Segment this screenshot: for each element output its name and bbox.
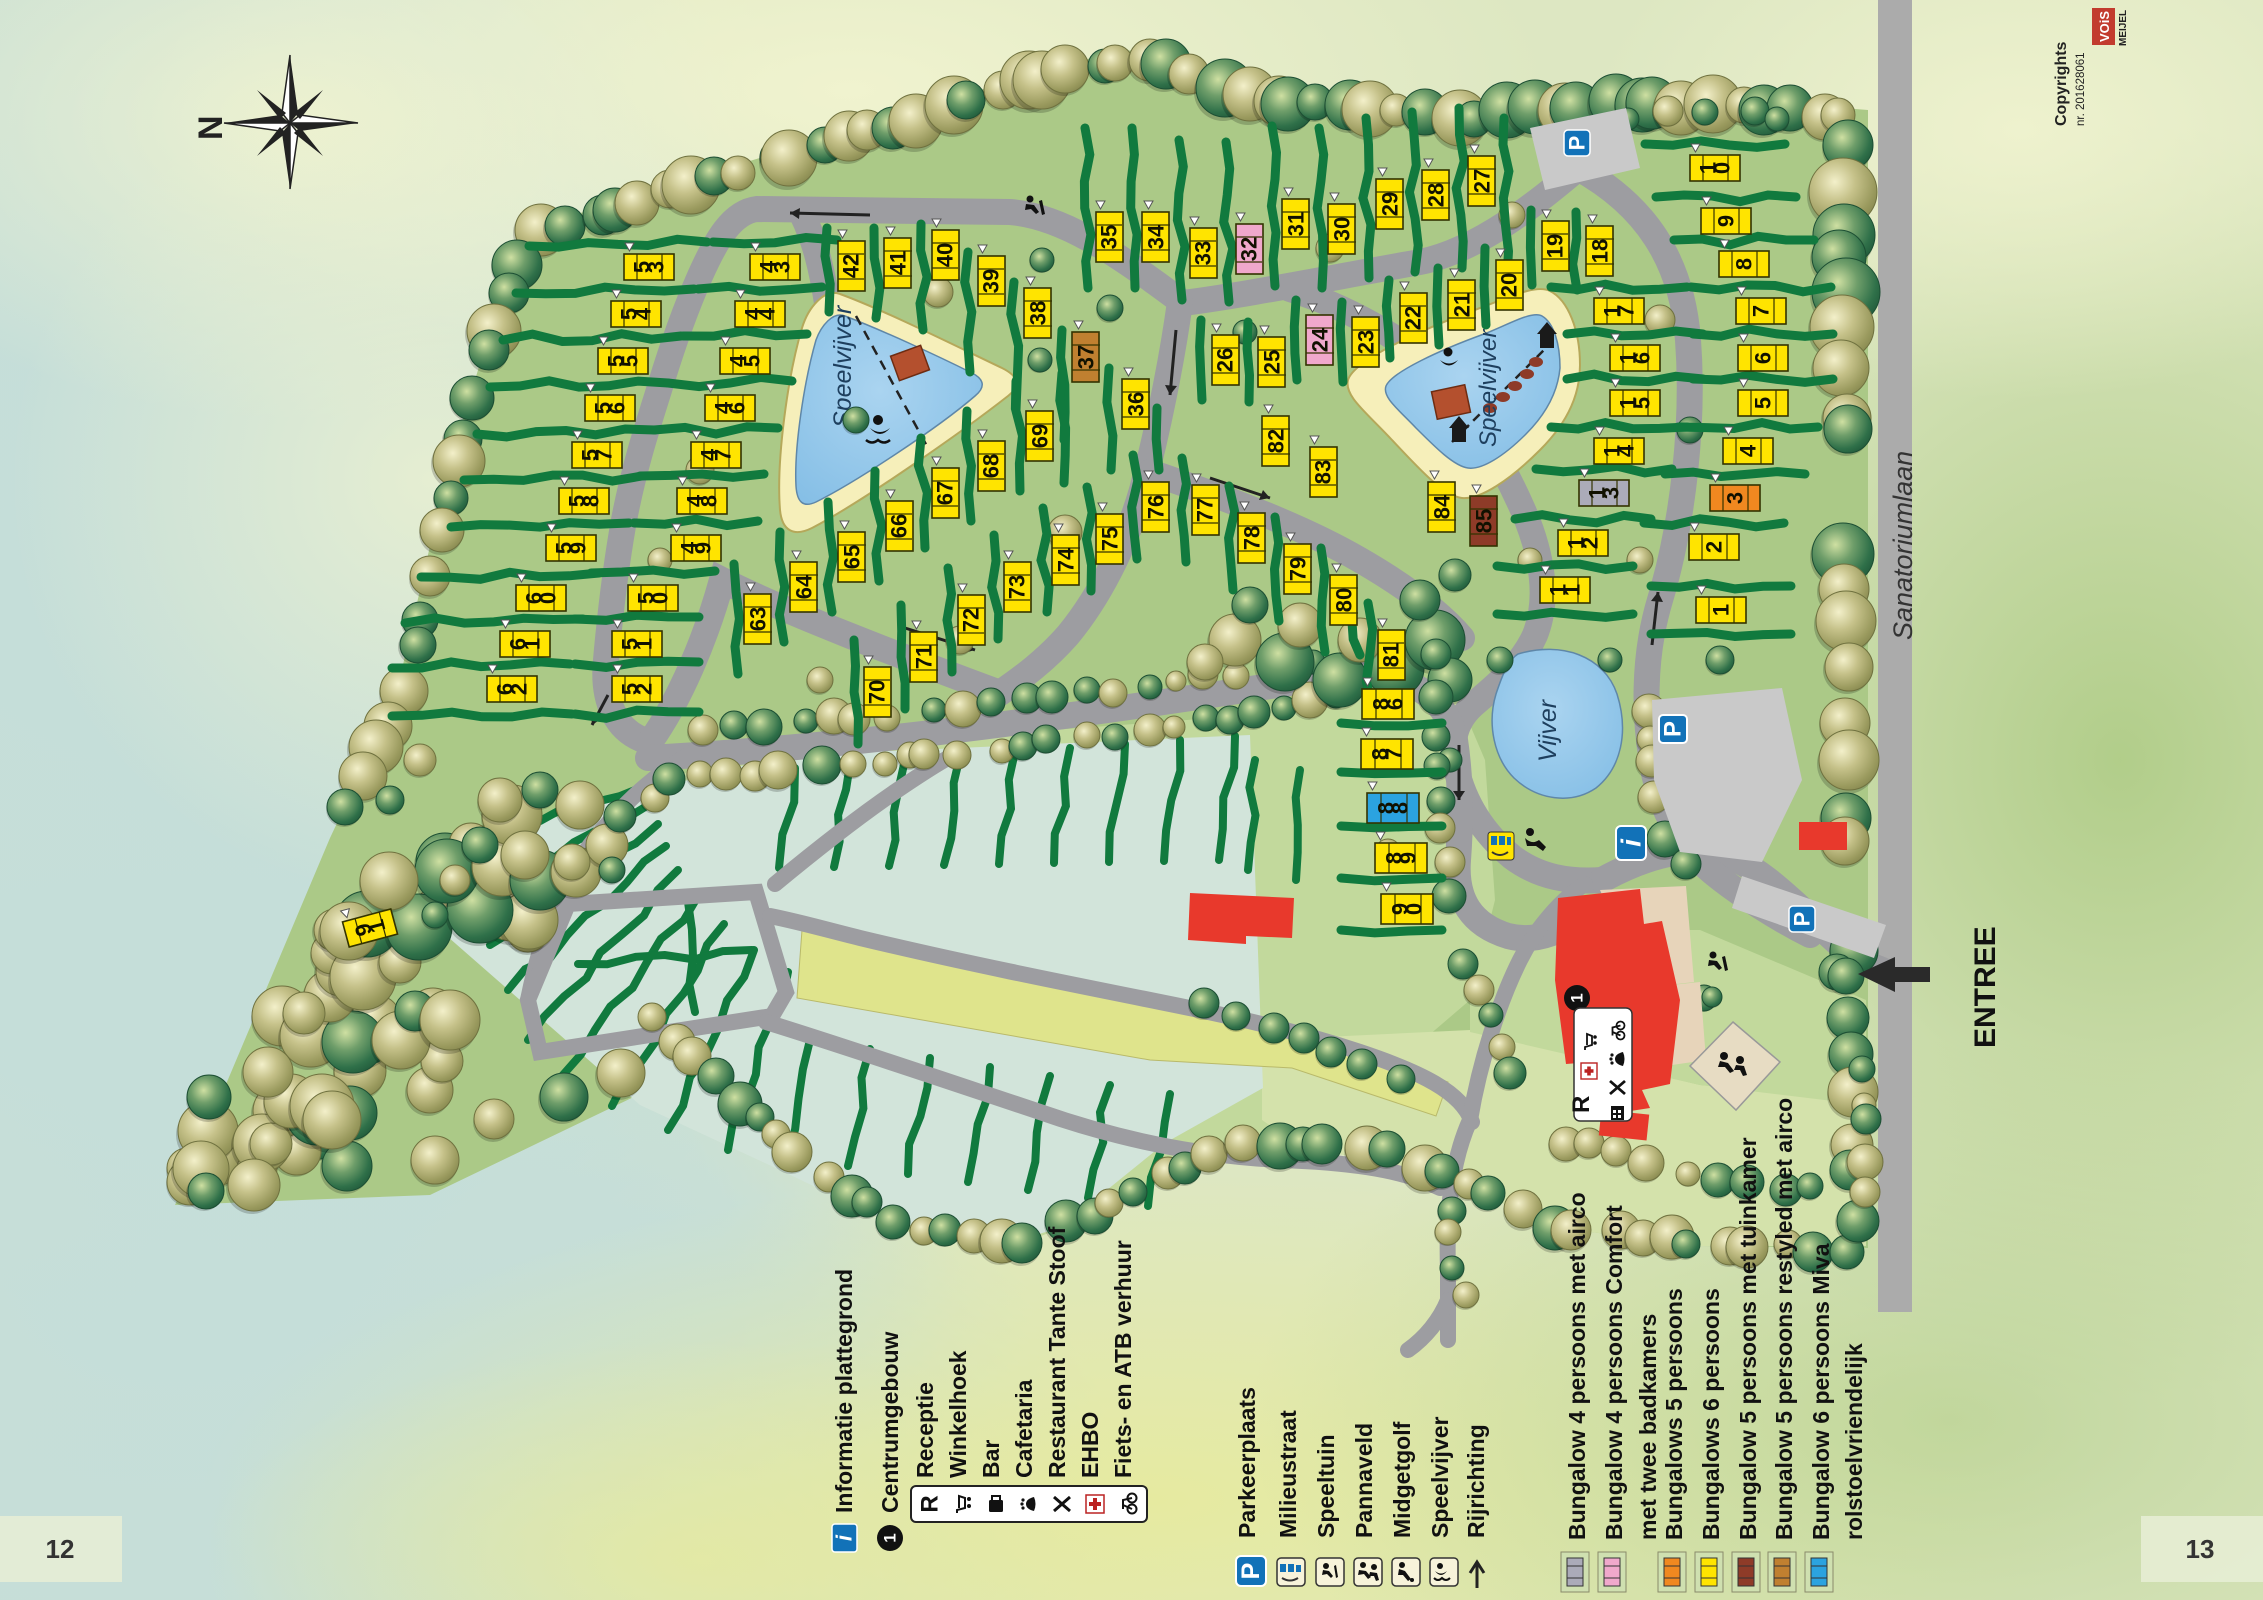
svg-text:1: 1 (1560, 584, 1585, 596)
svg-text:1: 1 (1709, 604, 1734, 616)
svg-text:Centrumgebouw: Centrumgebouw (877, 1331, 903, 1513)
svg-text:Bungalows 5 persoons: Bungalows 5 persoons (1661, 1288, 1687, 1540)
svg-text:Bungalow 5 persoons met tuinka: Bungalow 5 persoons met tuinkamer (1735, 1137, 1761, 1540)
svg-text:6: 6 (1383, 698, 1408, 710)
svg-text:39: 39 (979, 269, 1004, 293)
svg-text:N: N (192, 115, 230, 140)
svg-text:77: 77 (1193, 498, 1218, 522)
svg-text:6: 6 (725, 402, 750, 414)
svg-text:P: P (1790, 912, 1815, 927)
svg-text:Rijrichting: Rijrichting (1463, 1424, 1489, 1538)
svg-text:Cafetaria: Cafetaria (1011, 1379, 1037, 1478)
svg-text:23: 23 (1354, 330, 1379, 354)
svg-text:64: 64 (792, 574, 817, 599)
svg-text:Informatie plattegrond: Informatie plattegrond (831, 1269, 857, 1513)
svg-text:1: 1 (632, 638, 657, 650)
svg-text:Restaurant Tante Stoof: Restaurant Tante Stoof (1044, 1226, 1070, 1478)
svg-text:27: 27 (1470, 169, 1495, 193)
svg-text:3: 3 (1723, 492, 1748, 504)
svg-text:34: 34 (1144, 224, 1169, 249)
svg-text:7: 7 (1614, 305, 1639, 317)
svg-text:0: 0 (1402, 903, 1427, 915)
svg-text:9: 9 (691, 542, 716, 554)
svg-text:21: 21 (1450, 293, 1475, 317)
svg-text:met twee badkamers: met twee badkamers (1635, 1314, 1661, 1540)
svg-text:1: 1 (881, 1533, 900, 1542)
svg-text:5: 5 (1751, 397, 1776, 409)
svg-text:71: 71 (912, 645, 937, 669)
svg-text:13: 13 (2186, 1534, 2215, 1564)
svg-text:5: 5 (618, 355, 643, 367)
svg-text:69: 69 (1028, 424, 1053, 448)
svg-text:ENTREE: ENTREE (1969, 926, 2002, 1048)
svg-text:40: 40 (933, 243, 958, 267)
svg-text:33: 33 (1191, 241, 1216, 265)
svg-text:4: 4 (1614, 444, 1639, 457)
svg-text:80: 80 (1332, 588, 1357, 612)
svg-text:22: 22 (1401, 306, 1426, 330)
svg-text:Bungalows 6 persoons: Bungalows 6 persoons (1698, 1288, 1724, 1540)
svg-text:6: 6 (605, 402, 630, 414)
svg-text:0: 0 (536, 592, 561, 604)
svg-text:Speelvijver: Speelvijver (1475, 329, 1502, 447)
svg-text:7: 7 (711, 449, 736, 461)
svg-text:35: 35 (1097, 225, 1122, 249)
svg-text:2: 2 (1578, 537, 1603, 549)
svg-text:6: 6 (1630, 352, 1655, 364)
svg-text:rolstoelvriendelijk: rolstoelvriendelijk (1841, 1343, 1867, 1540)
svg-text:9: 9 (1714, 215, 1739, 227)
svg-text:36: 36 (1124, 392, 1149, 416)
svg-text:37: 37 (1074, 345, 1099, 369)
svg-text:7: 7 (1382, 748, 1407, 760)
svg-text:29: 29 (1378, 192, 1403, 216)
svg-text:Bungalow 6 persoons Miva: Bungalow 6 persoons Miva (1808, 1243, 1834, 1540)
svg-text:41: 41 (886, 251, 911, 275)
svg-text:i: i (832, 1534, 857, 1541)
svg-text:6: 6 (1751, 352, 1776, 364)
svg-text:8: 8 (579, 495, 604, 507)
svg-text:Parkeerplaats: Parkeerplaats (1234, 1387, 1260, 1538)
svg-text:5: 5 (740, 355, 765, 367)
svg-text:4: 4 (631, 307, 656, 320)
svg-text:42: 42 (839, 254, 864, 278)
svg-text:83: 83 (1311, 460, 1336, 484)
svg-text:24: 24 (1308, 327, 1333, 352)
svg-text:8: 8 (1388, 802, 1413, 814)
svg-text:20: 20 (1497, 273, 1522, 297)
svg-text:EHBO: EHBO (1077, 1412, 1103, 1478)
svg-text:P: P (1237, 1563, 1265, 1580)
svg-text:4: 4 (1736, 444, 1761, 457)
svg-text:P: P (1565, 136, 1590, 151)
svg-text:Copyrights: Copyrights (2053, 41, 2070, 126)
svg-text:Bungalow 4 persoons met airco: Bungalow 4 persoons met airco (1564, 1192, 1590, 1540)
svg-text:38: 38 (1026, 301, 1051, 325)
svg-text:1: 1 (520, 638, 545, 650)
svg-text:8: 8 (697, 495, 722, 507)
svg-text:R: R (917, 1495, 944, 1512)
svg-text:5: 5 (1630, 397, 1655, 409)
svg-text:3: 3 (1599, 487, 1624, 499)
svg-text:76: 76 (1144, 495, 1169, 519)
svg-text:3: 3 (644, 261, 669, 273)
svg-text:30: 30 (1330, 217, 1355, 241)
svg-text:63: 63 (746, 607, 771, 631)
svg-text:Winkelhoek: Winkelhoek (945, 1350, 971, 1478)
svg-text:66: 66 (887, 514, 912, 538)
svg-text:7: 7 (1749, 305, 1774, 317)
svg-text:nr. 201628061: nr. 201628061 (2075, 52, 2087, 126)
svg-text:72: 72 (959, 608, 984, 632)
svg-text:Sanatoriumlaan: Sanatoriumlaan (1888, 451, 1918, 640)
svg-text:4: 4 (755, 307, 780, 320)
svg-text:85: 85 (1472, 509, 1497, 533)
svg-text:65: 65 (840, 545, 865, 569)
svg-text:R: R (1568, 1096, 1595, 1113)
svg-text:P: P (1660, 721, 1687, 737)
svg-text:19: 19 (1543, 234, 1568, 258)
svg-text:0: 0 (1710, 162, 1735, 174)
svg-text:Bungalow 4 persoons Comfort: Bungalow 4 persoons Comfort (1601, 1205, 1627, 1540)
svg-text:2: 2 (507, 683, 532, 695)
svg-text:Milieustraat: Milieustraat (1275, 1410, 1301, 1538)
svg-text:9: 9 (566, 542, 591, 554)
svg-text:VOiS: VOiS (2097, 11, 2112, 42)
svg-text:Fiets- en ATB verhuur: Fiets- en ATB verhuur (1110, 1240, 1136, 1478)
svg-text:Receptie: Receptie (912, 1382, 938, 1478)
svg-text:18: 18 (1588, 239, 1613, 263)
svg-text:8: 8 (1732, 258, 1757, 270)
svg-text:82: 82 (1264, 429, 1289, 453)
svg-text:Speeltuin: Speeltuin (1313, 1434, 1339, 1538)
svg-text:68: 68 (979, 454, 1004, 478)
svg-text:MEIJEL: MEIJEL (2118, 10, 2129, 46)
svg-text:81: 81 (1379, 643, 1404, 667)
svg-text:0: 0 (648, 592, 673, 604)
svg-text:Bungalow 5 persoons restyled m: Bungalow 5 persoons restyled met airco (1771, 1098, 1797, 1540)
svg-text:Vijver: Vijver (1534, 698, 1562, 762)
svg-text:2: 2 (632, 683, 657, 695)
svg-text:25: 25 (1260, 350, 1285, 374)
svg-text:1: 1 (1568, 993, 1587, 1002)
svg-text:79: 79 (1286, 557, 1311, 581)
svg-text:32: 32 (1237, 237, 1262, 261)
svg-text:84: 84 (1430, 494, 1455, 519)
svg-text:74: 74 (1054, 547, 1079, 572)
svg-text:31: 31 (1284, 212, 1309, 236)
svg-text:75: 75 (1098, 527, 1123, 551)
svg-text:7: 7 (592, 449, 617, 461)
svg-text:12: 12 (46, 1534, 75, 1564)
svg-text:Pannaveld: Pannaveld (1351, 1423, 1377, 1538)
svg-text:9: 9 (1396, 852, 1421, 864)
svg-text:70: 70 (865, 680, 890, 704)
svg-text:Speelvijver: Speelvijver (1427, 1416, 1453, 1538)
svg-text:3: 3 (770, 261, 795, 273)
svg-text:Midgetgolf: Midgetgolf (1389, 1421, 1415, 1538)
svg-text:73: 73 (1005, 575, 1030, 599)
svg-text:26: 26 (1213, 348, 1238, 372)
svg-text:28: 28 (1424, 183, 1449, 207)
svg-text:2: 2 (1702, 541, 1727, 553)
svg-text:i: i (1616, 838, 1647, 847)
svg-text:67: 67 (933, 481, 958, 505)
svg-text:78: 78 (1240, 526, 1265, 550)
svg-text:Bar: Bar (978, 1440, 1004, 1478)
